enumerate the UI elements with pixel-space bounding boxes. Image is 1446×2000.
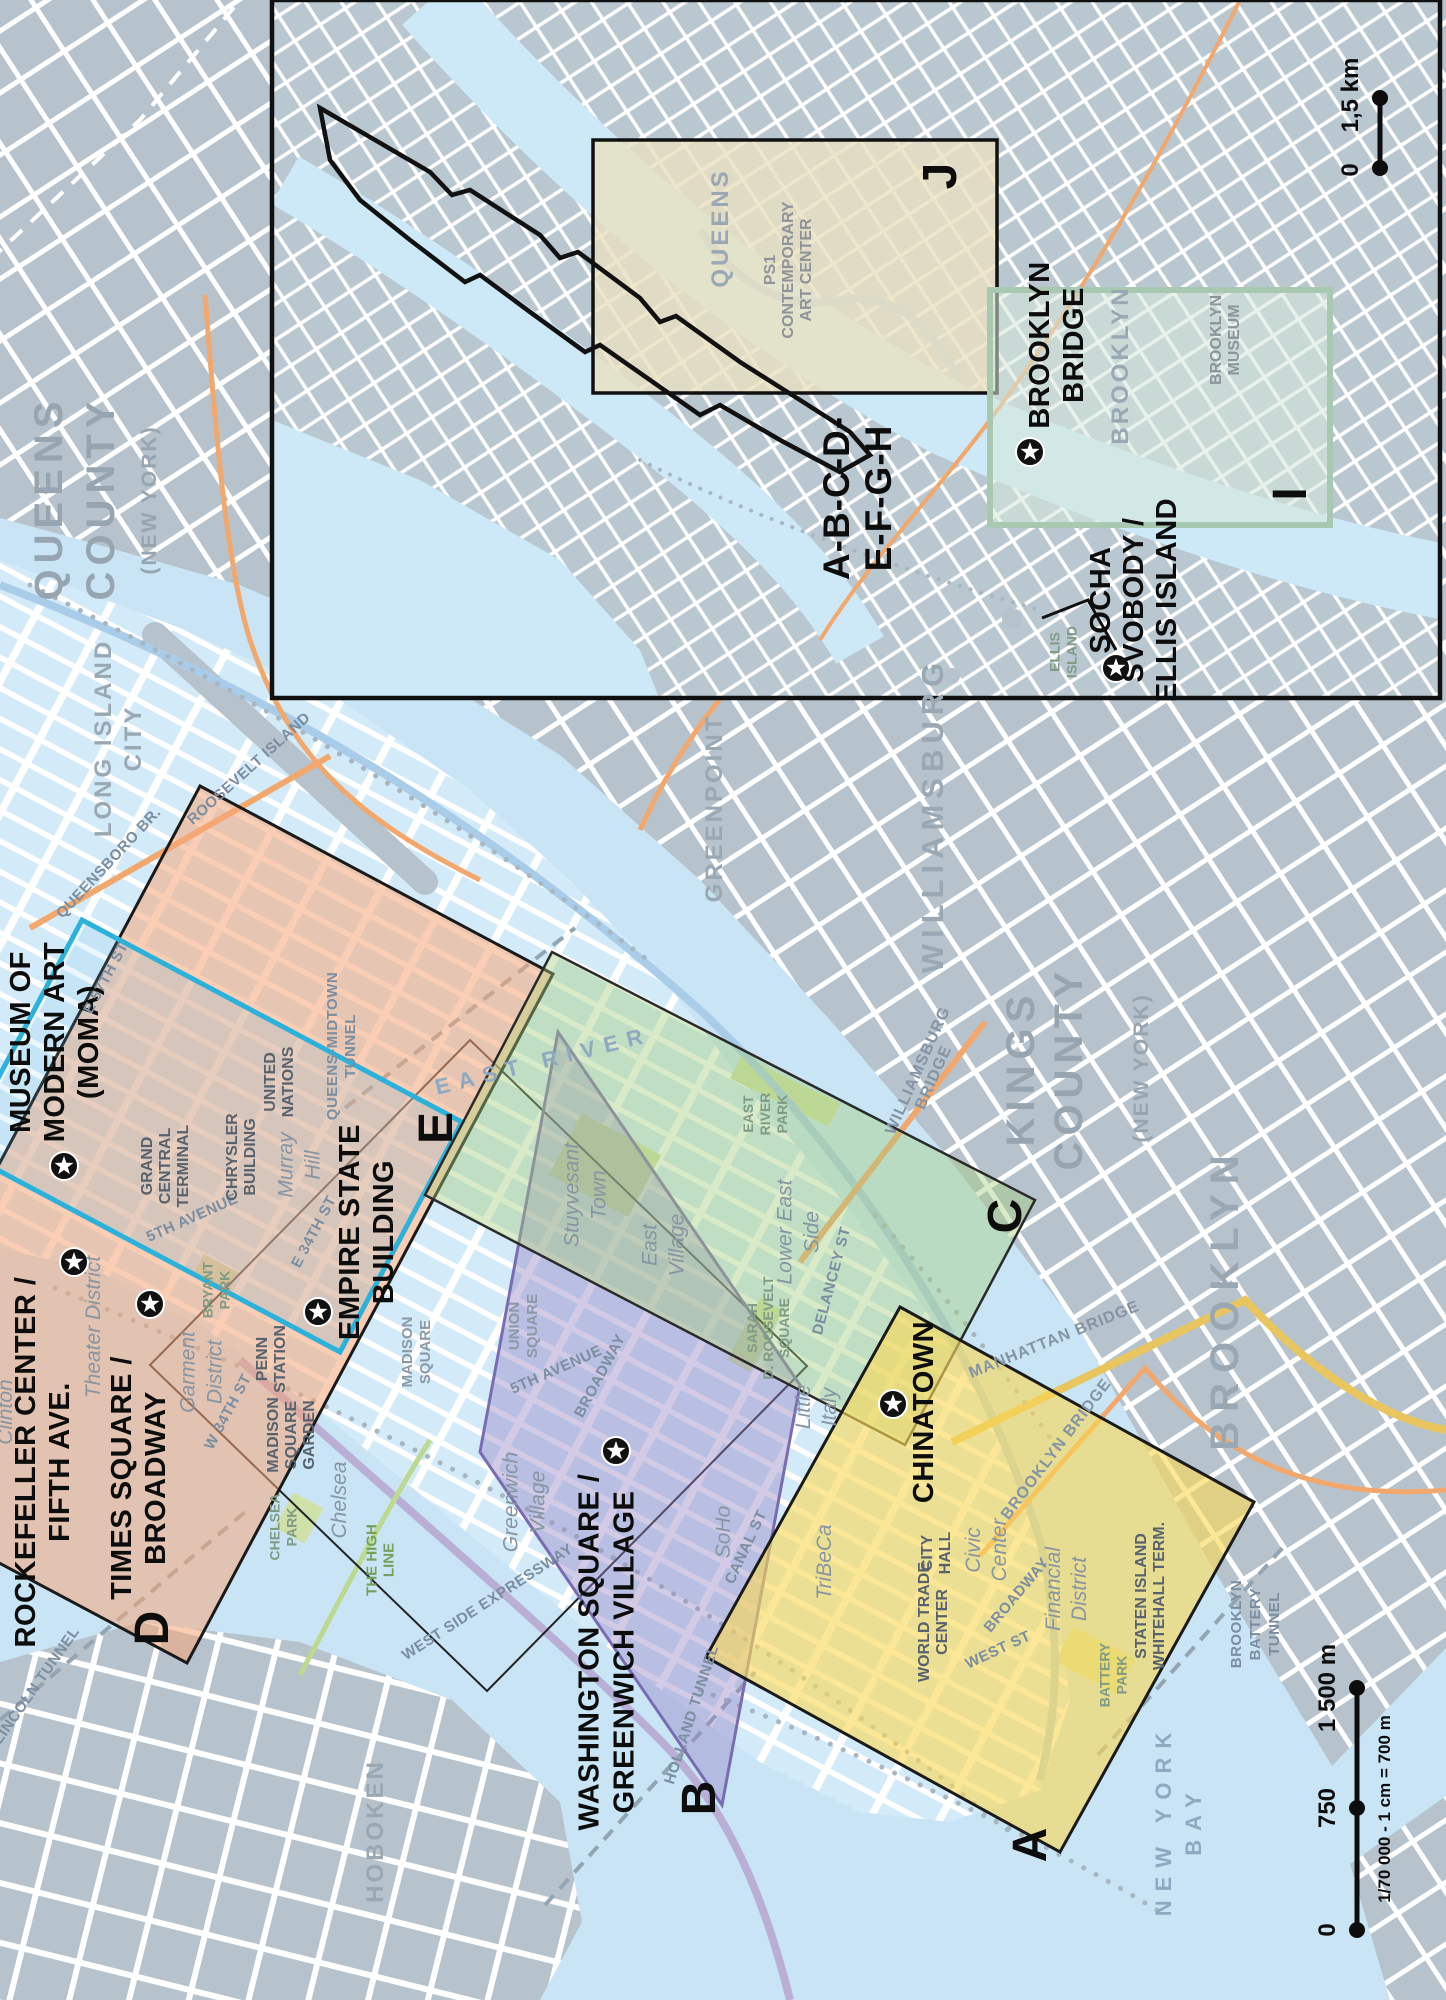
index-letter-d: D xyxy=(126,1611,179,1646)
label-clinton: Clinton xyxy=(0,1379,17,1444)
label-williamsburg: WILLIAMSBURG xyxy=(915,657,950,974)
label-queens-county-sub: (NEW YORK) xyxy=(138,425,161,574)
index-letter-j: J xyxy=(914,163,967,190)
main-scale-bar-tick: 750 xyxy=(1314,1788,1341,1828)
label-theater-district: Theater District xyxy=(82,1255,105,1399)
index-letter-e: E xyxy=(410,1112,463,1144)
label-greenpoint: GREENPOINT xyxy=(701,714,728,903)
city-map: ABCDEIJ MUSEUM OFMODERN ART(MOMA)ROCKEFE… xyxy=(0,0,1446,2000)
label-staten-island-whitehall-term: STATEN ISLANDWHITEHALL TERM. xyxy=(1133,1522,1168,1670)
index-letter-c: C xyxy=(979,1199,1032,1234)
label-united-nations: UNITEDNATIONS xyxy=(262,1046,297,1117)
label-page-range: A-B-C-D-E-F-G-H xyxy=(816,416,899,580)
label-chinatown: CHINATOWN xyxy=(908,1321,940,1503)
label-tribeca: TriBeCa xyxy=(813,1524,836,1599)
label-brooklyn-borough: BROOKLYN xyxy=(1203,1145,1247,1450)
label-chelsea: Chelsea xyxy=(328,1461,351,1538)
label-queens-inset: QUEENS xyxy=(707,168,734,287)
index-letter-i: I xyxy=(1264,487,1317,500)
main-scale-bar-tick: 0 xyxy=(1314,1923,1341,1936)
label-kings-county-sub: (NEW YORK) xyxy=(1130,993,1153,1142)
inset-map xyxy=(272,0,1445,700)
label-soho: SoHo xyxy=(712,1505,735,1558)
label-brooklyn-inset: BROOKLYN xyxy=(1107,285,1134,444)
times-square-star xyxy=(136,1290,164,1318)
main-scale-bar-ratio: 1/70 000 - 1 cm = 700 m xyxy=(1375,1715,1394,1903)
washington-square-star xyxy=(602,1437,630,1465)
label-hoboken: HOBOKEN xyxy=(362,1759,389,1903)
moma-star xyxy=(50,1152,78,1180)
main-scale-bar-tick: 1 500 m xyxy=(1314,1644,1341,1732)
index-letter-a: A xyxy=(1004,1828,1057,1863)
label-grand-central-terminal: GRANDCENTRALTERMINAL xyxy=(139,1124,192,1207)
map-canvas[interactable]: ABCDEIJ MUSEUM OFMODERN ART(MOMA)ROCKEFE… xyxy=(0,0,1446,2000)
label-chrysler-building: CHRYSLERBUILDING xyxy=(224,1113,259,1201)
label-union-square: UNIONSQUARE xyxy=(506,1294,541,1358)
inset-scale-bar-tick: 0 xyxy=(1337,163,1364,176)
inset-ellis-island xyxy=(1002,608,1022,628)
empire-state-star xyxy=(304,1298,332,1326)
chinatown-star xyxy=(879,1390,907,1418)
label-madison-square-garden: MADISONSQUAREGARDEN xyxy=(265,1397,318,1473)
label-brooklyn-museum: BROOKLYNMUSEUM xyxy=(1208,295,1243,385)
label-east-river-park: EASTRIVERPARK xyxy=(740,1093,790,1136)
brooklyn-bridge-star xyxy=(1016,438,1044,466)
label-brooklyn-battery-tunnel: BROOKLYNBATTERYTUNNEL xyxy=(1228,1580,1283,1668)
label-madison-square: MADISONSQUARE xyxy=(399,1317,434,1388)
inset-scale-bar-tick: 1,5 km xyxy=(1337,58,1364,133)
index-letter-b: B xyxy=(673,1781,726,1816)
label-ellis-island: ELLISISLAND xyxy=(1047,626,1080,678)
